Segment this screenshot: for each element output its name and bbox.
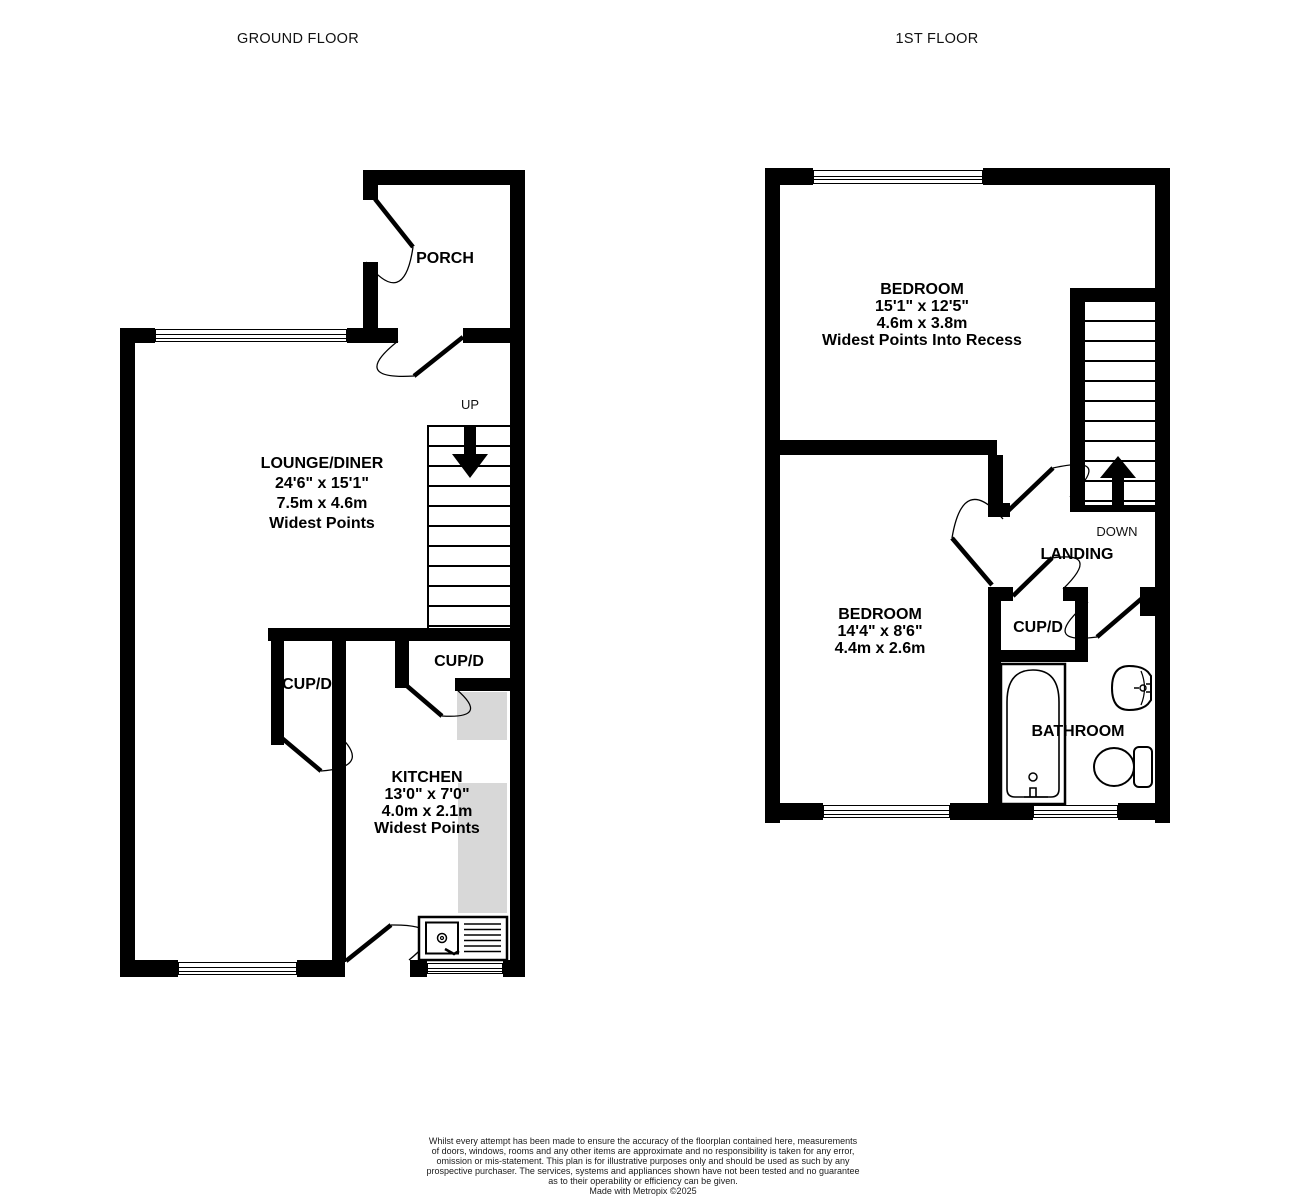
bedroom2-name: BEDROOM [835,606,926,623]
bedroom2-label: BEDROOM 14'4" x 8'6" 4.4m x 2.6m [835,606,926,657]
kitchen-back-door [346,925,428,961]
metropix-credit: Made with Metropix ©2025 [426,1186,859,1196]
ff-bathroom-left-wall [988,587,1001,805]
ff-bottom-wall-3 [1118,803,1170,820]
gf-up-arrow-shaft [464,427,476,455]
kitchen-metric: 4.0m x 2.1m [374,803,480,820]
lounge-label: LOUNGE/DINER 24'6" x 15'1" 7.5m x 4.6m W… [261,454,384,534]
bedroom1-imperial: 15'1" x 12'5" [822,298,1022,315]
porch-top-wall [363,170,525,185]
porch-left-wall-lower [363,262,378,343]
gf-entry-wall-right [463,328,510,343]
gf-up-arrow-head [452,454,488,478]
disclaimer: Whilst every attempt has been made to en… [426,1136,859,1196]
bathroom-label: BATHROOM [1031,723,1124,740]
landing-label: LANDING [1041,546,1114,563]
gf-bottom-wall-1 [120,960,178,977]
ff-bedroom1-window [813,170,983,184]
lounge-note: Widest Points [261,514,384,534]
ff-bathroom-door-stub [1140,587,1155,616]
gf-bottom-wall-4 [503,960,525,977]
disclaimer-line: Whilst every attempt has been made to en… [426,1136,859,1146]
bedroom2-imperial: 14'4" x 8'6" [835,623,926,640]
ff-bathroom-window [1033,805,1118,818]
bedroom2-metric: 4.4m x 2.6m [835,640,926,657]
gf-right-wall [510,170,525,977]
gf-bottom-wall-3 [410,960,427,977]
landing-cupd-label: CUP/D [1013,619,1063,636]
toilet-icon [1094,747,1152,787]
gf-kitchen-window [427,963,503,974]
kitchen-note: Widest Points [374,820,480,837]
porch-label: PORCH [416,250,474,267]
ff-cupd-stub-left [988,587,1013,601]
disclaimer-line: as to their operability or efficiency ca… [426,1176,859,1186]
basin-icon [1112,666,1152,710]
ff-left-wall [765,168,780,823]
kitchen-cupd-label: CUP/D [434,653,484,670]
ff-stairs-left-wall [1070,288,1085,512]
disclaimer-line: omission or mis-statement. This plan is … [426,1156,859,1166]
kitchen-imperial: 13'0" x 7'0" [374,786,480,803]
gf-top-wall-left [120,328,155,343]
down-label: DOWN [1096,524,1137,539]
ff-door-hinge-stub [997,503,1010,517]
up-label: UP [461,397,479,412]
lounge-imperial: 24'6" x 15'1" [261,474,384,494]
ff-bottom-wall-2 [950,803,1033,820]
gf-bottom-wall-2 [297,960,345,977]
ff-bottom-wall-1 [765,803,823,820]
ff-cupd-bottom-wall [988,650,1088,662]
floorplan-page: { "titles": { "ground": "GROUND FLOOR", … [0,0,1289,1200]
ff-down-arrow-shaft [1112,476,1124,512]
gf-kitchen-divider-wall [332,628,346,962]
kitchen-counter-upper [457,692,507,740]
gf-lounge-bottom-window [178,962,297,975]
kitchen-sink [419,917,507,960]
gf-kitchen-cupd-stub [395,640,409,688]
ff-bedroom2-window [823,805,950,818]
ff-bedroom-divider-wall [765,440,997,455]
bedroom1-name: BEDROOM [822,281,1022,298]
gf-mid-wall [268,628,510,641]
kitchen-label: KITCHEN 13'0" x 7'0" 4.0m x 2.1m Widest … [374,769,480,837]
disclaimer-line: of doors, windows, rooms and any other i… [426,1146,859,1156]
bedroom1-label: BEDROOM 15'1" x 12'5" 4.6m x 3.8m Widest… [822,281,1022,349]
ff-top-wall-right [983,168,1170,185]
bedroom1-metric: 4.6m x 3.8m [822,315,1022,332]
kitchen-name: KITCHEN [374,769,480,786]
hall-cupd-label: CUP/D [282,676,332,693]
ff-top-wall-left [765,168,813,185]
first-floor-title: 1ST FLOOR [895,31,978,47]
disclaimer-line: prospective purchaser. The services, sys… [426,1166,859,1176]
ff-right-wall [1155,168,1170,823]
gf-kitchen-cupd-bottom-wall [455,678,510,691]
bedroom1-note: Widest Points Into Recess [822,332,1022,349]
ff-down-arrow-head [1100,456,1136,478]
gf-lounge-window [155,329,347,342]
gf-left-wall [120,328,135,977]
lounge-name: LOUNGE/DINER [261,454,384,474]
ground-floor-title: GROUND FLOOR [237,31,359,47]
porch-left-wall-upper [363,170,378,200]
lounge-metric: 7.5m x 4.6m [261,494,384,514]
